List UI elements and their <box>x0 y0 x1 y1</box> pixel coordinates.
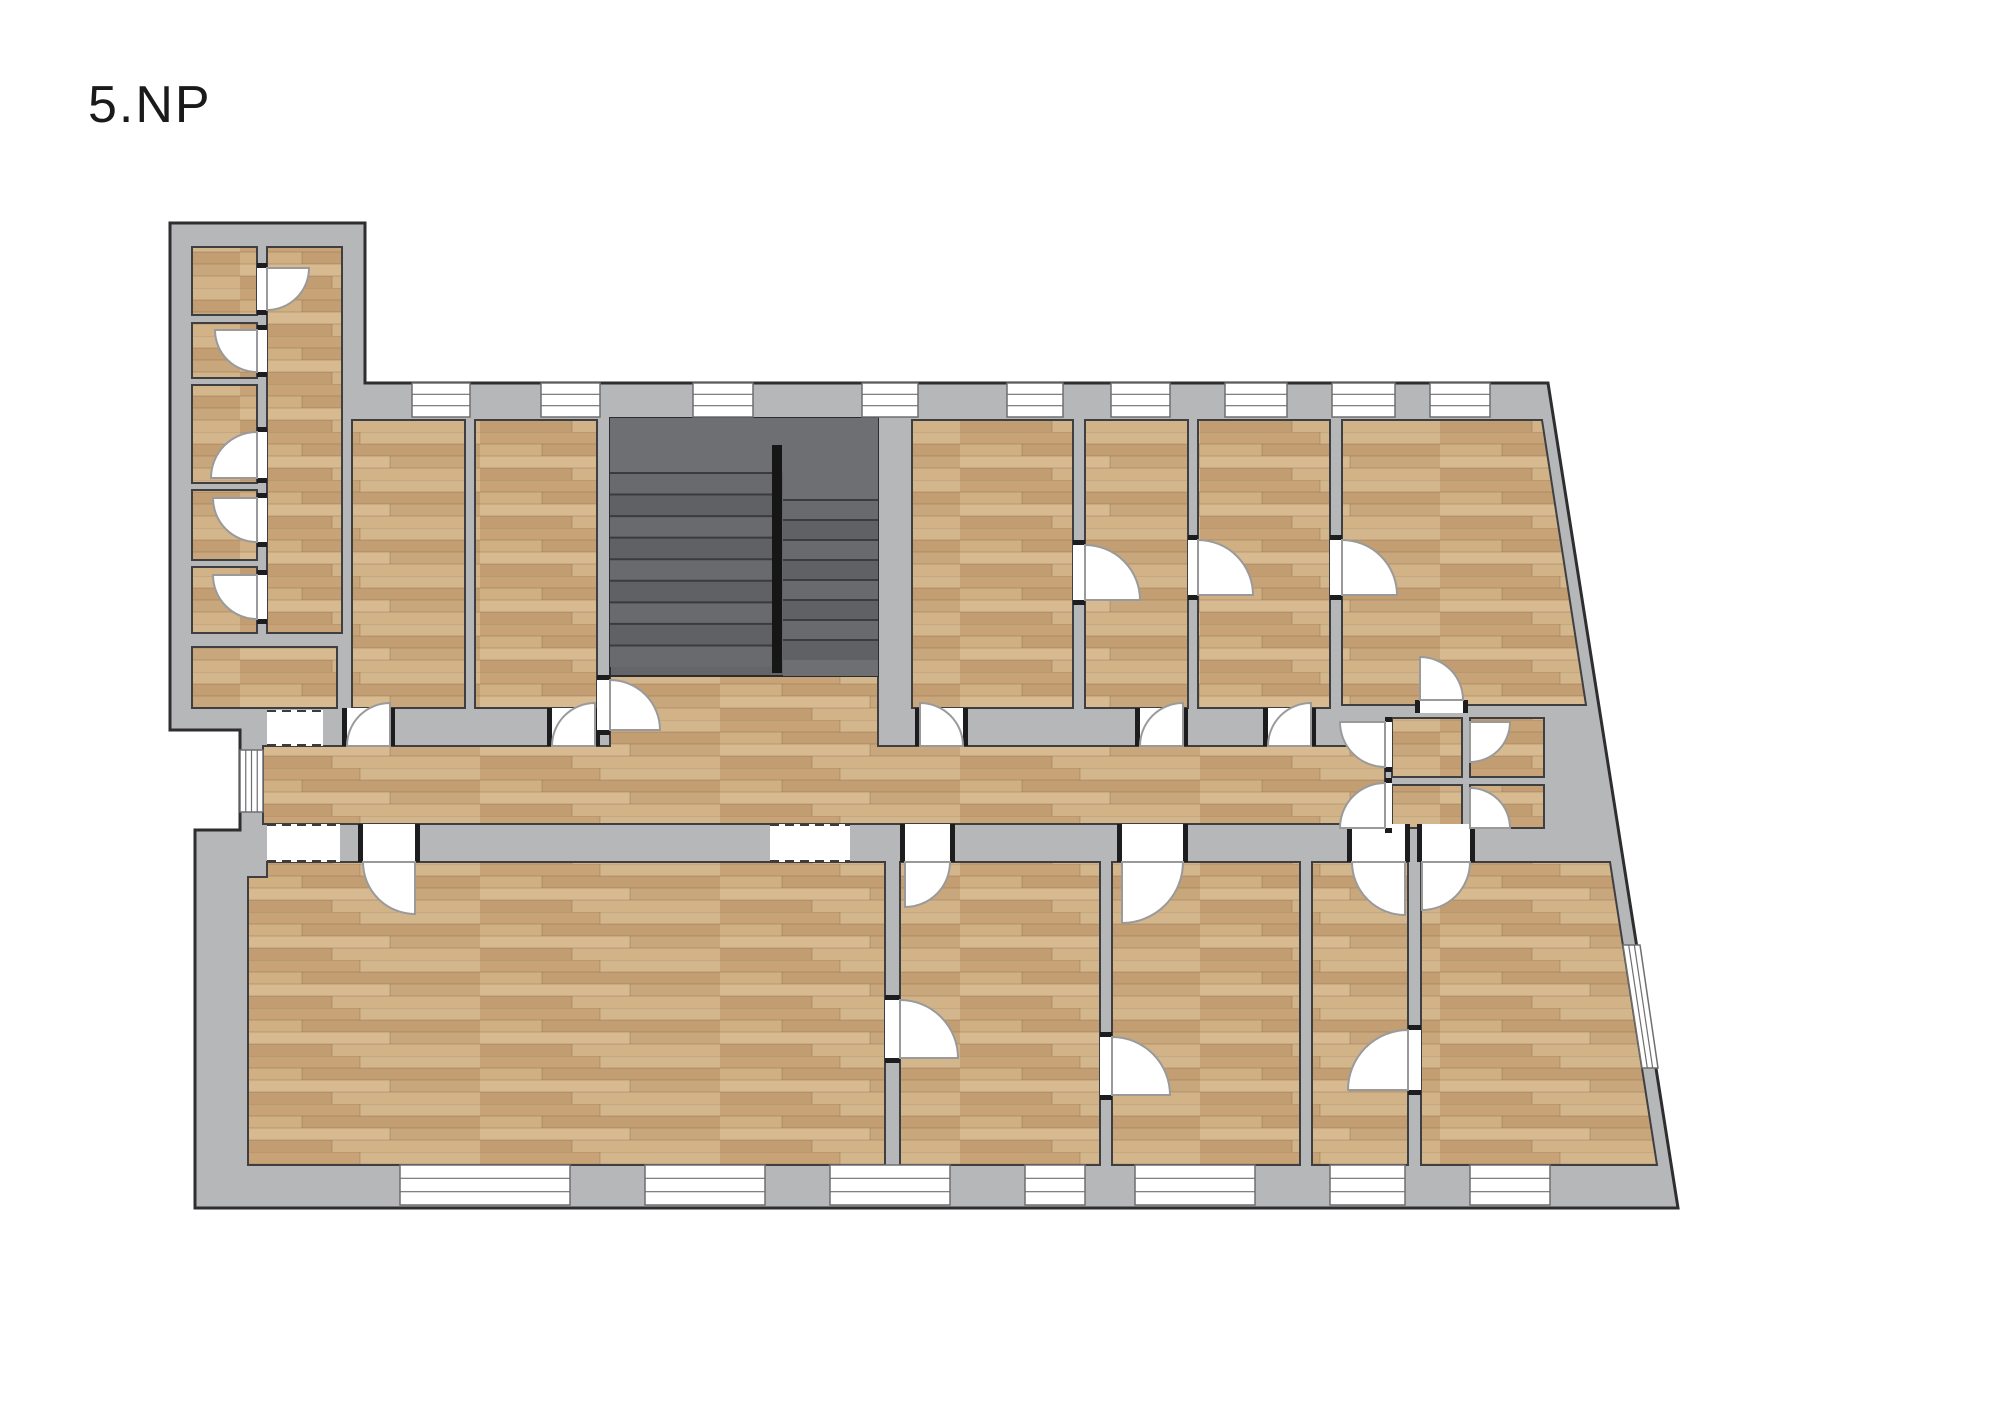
floor-title: 5.NP <box>88 76 212 134</box>
stair-landing-ext <box>783 473 878 500</box>
window-top-6 <box>1111 383 1170 417</box>
doorway-d-e-jamb <box>1188 595 1198 600</box>
stair-tread <box>610 645 773 667</box>
room-c <box>912 420 1073 708</box>
doorway-wing-1-jamb <box>257 310 267 315</box>
doorway-room-k-jamb <box>1417 824 1422 862</box>
doorway-wc-3 <box>1385 783 1392 828</box>
wing-room-6 <box>192 647 337 708</box>
doorway-h-i-jamb <box>1100 1032 1112 1037</box>
doorway-room-d-jamb <box>1135 708 1140 746</box>
doorway-room-b-jamb <box>547 708 552 746</box>
doorway-e-f-jamb <box>1330 535 1342 540</box>
stair-tread <box>783 620 878 640</box>
doorway-room-h-jamb <box>950 824 955 862</box>
plan-graphics <box>0 0 2000 1414</box>
stair-tread <box>610 538 773 560</box>
doorway-room-k-jamb <box>1470 824 1475 862</box>
doorway-wc-1 <box>1385 722 1392 767</box>
stair-tread <box>783 560 878 580</box>
doorway-room-k <box>1422 824 1470 862</box>
doorway-e-f-jamb <box>1330 595 1342 600</box>
doorway-wing-4-jamb <box>257 542 267 547</box>
doorway-room-j-jamb <box>1347 824 1352 862</box>
window-top-2 <box>541 383 600 417</box>
doorway-stair-hall-jamb <box>597 730 610 735</box>
doorway-room-h-jamb <box>900 824 905 862</box>
doorway-wc-3-jamb <box>1385 828 1392 833</box>
doorway-g-h <box>885 1000 900 1058</box>
wc-3 <box>1392 785 1462 828</box>
stair-landing <box>610 418 878 473</box>
doorway-room-g-jamb <box>415 824 420 862</box>
stair-landing-ext <box>783 660 878 676</box>
doorway-h-i-jamb <box>1100 1095 1112 1100</box>
window-bottom-4 <box>1025 1165 1085 1205</box>
doorway-room-e-jamb <box>1263 708 1268 746</box>
opening-corridor-g <box>770 824 850 862</box>
stair-tread <box>783 640 878 660</box>
window-bottom-1 <box>400 1165 570 1205</box>
window-top-3 <box>693 383 753 417</box>
window-top-4 <box>862 383 918 417</box>
window-bottom-7 <box>1470 1165 1550 1205</box>
doorway-g-h-jamb <box>885 1058 900 1063</box>
doorway-stair-hall <box>597 680 610 730</box>
window-bottom-3 <box>830 1165 950 1205</box>
window-bottom-6 <box>1330 1165 1405 1205</box>
stair-tread <box>610 624 773 646</box>
floor-plan-svg: 5.NP <box>0 0 2000 1414</box>
doorway-wc-3-jamb <box>1385 778 1392 783</box>
doorway-wing-2-jamb <box>257 372 267 377</box>
doorway-c-d <box>1073 545 1085 600</box>
doorway-h-i <box>1100 1037 1112 1095</box>
stair-tread <box>610 495 773 517</box>
stair-tread <box>610 559 773 581</box>
doorway-room-i-jamb <box>1183 824 1188 862</box>
doorway-room-j-jamb <box>1405 824 1410 862</box>
doorway-stair-hall-jamb <box>597 675 610 680</box>
doorway-c-d-jamb <box>1073 540 1085 545</box>
stair-tread <box>783 580 878 600</box>
doorway-wing-1-jamb <box>257 263 267 268</box>
doorway-room-f-jamb <box>1415 700 1420 713</box>
doorway-wing-5-jamb <box>257 619 267 624</box>
wc-1 <box>1392 718 1462 777</box>
doorway-j-k <box>1408 1030 1421 1090</box>
doorway-g-h-jamb <box>885 995 900 1000</box>
doorway-room-h <box>905 824 950 862</box>
doorway-room-f <box>1420 700 1463 713</box>
doorway-wing-3-jamb <box>257 427 267 432</box>
doorway-room-g-jamb <box>358 824 363 862</box>
wing-room-1 <box>192 247 257 315</box>
doorway-room-g <box>363 824 415 862</box>
stair-tread <box>610 473 773 495</box>
room-g <box>248 862 885 1165</box>
doorway-d-e <box>1188 540 1198 595</box>
doorway-wing-3-jamb <box>257 478 267 483</box>
stair-tread <box>783 540 878 560</box>
stair-tread <box>783 600 878 620</box>
window-bottom-2 <box>645 1165 765 1205</box>
doorway-wing-2-jamb <box>257 325 267 330</box>
doorway-room-j <box>1352 824 1405 862</box>
stair-tread <box>610 516 773 538</box>
window-top-7 <box>1225 383 1287 417</box>
doorway-wc-1-jamb <box>1385 717 1392 722</box>
stair-tread <box>783 500 878 520</box>
doorway-c-d-jamb <box>1073 600 1085 605</box>
doorway-wing-2 <box>257 330 267 372</box>
room-b <box>475 420 597 708</box>
doorway-room-f-jamb <box>1463 700 1468 713</box>
window-top-8 <box>1332 383 1395 417</box>
stair-tread <box>610 602 773 624</box>
stair-tread <box>610 581 773 603</box>
doorway-wing-4-jamb <box>257 493 267 498</box>
doorway-wing-4 <box>257 498 267 542</box>
window-bottom-5 <box>1135 1165 1255 1205</box>
doorway-j-k-jamb <box>1408 1090 1421 1095</box>
window-top-9 <box>1430 383 1490 417</box>
doorway-room-i <box>1122 824 1183 862</box>
opening-vestibule-top <box>267 710 323 746</box>
doorway-room-a-jamb <box>342 708 347 746</box>
doorway-wing-3 <box>257 432 267 478</box>
stair-railing <box>772 445 782 673</box>
doorway-wc-1-jamb <box>1385 767 1392 772</box>
doorway-j-k-jamb <box>1408 1025 1421 1030</box>
stair-tread <box>783 520 878 540</box>
window-top-5 <box>1007 383 1063 417</box>
room-a <box>352 420 465 708</box>
window-top-1 <box>412 383 470 417</box>
floorplan-page: 5.NP <box>0 0 2000 1414</box>
doorway-wing-5 <box>257 575 267 619</box>
doorway-d-e-jamb <box>1188 535 1198 540</box>
doorway-wing-5-jamb <box>257 570 267 575</box>
doorway-room-c-jamb <box>963 708 968 746</box>
doorway-wing-1 <box>257 268 267 310</box>
doorway-room-i-jamb <box>1117 824 1122 862</box>
doorway-e-f <box>1330 540 1342 595</box>
opening-vestibule-bottom <box>267 824 340 862</box>
